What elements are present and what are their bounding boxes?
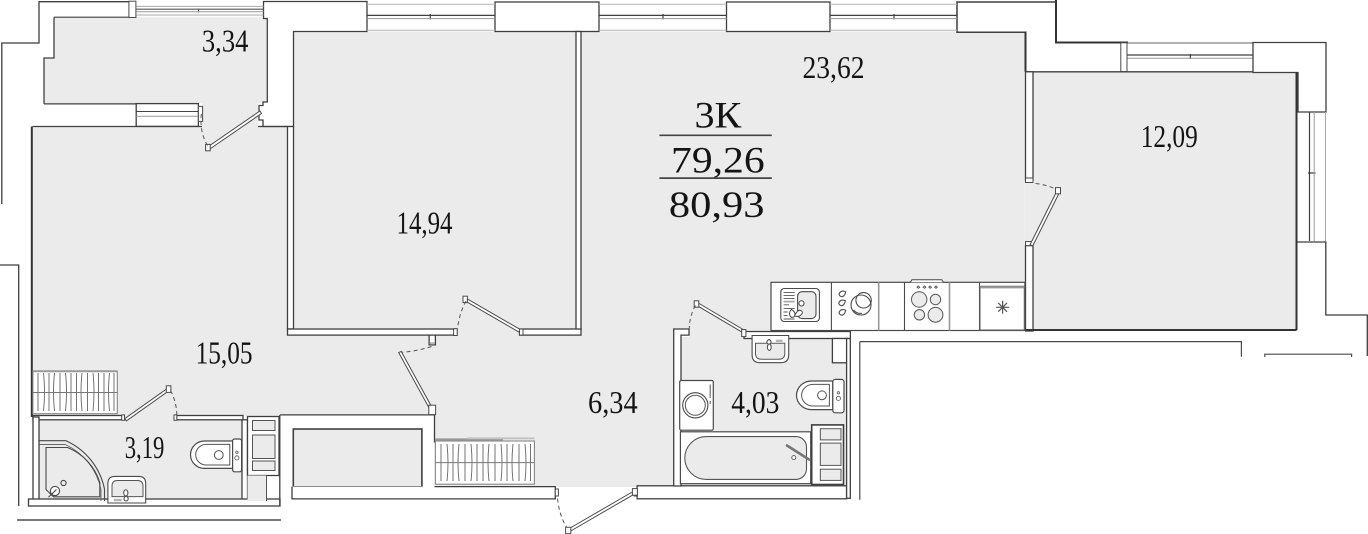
svg-text:23,62: 23,62 [803,49,865,85]
svg-text:80,93: 80,93 [669,185,765,226]
svg-text:79,26: 79,26 [671,140,765,181]
svg-text:3К: 3К [695,96,742,137]
svg-text:15,05: 15,05 [196,335,253,371]
svg-text:12,09: 12,09 [1141,118,1198,154]
svg-text:14,94: 14,94 [397,205,453,241]
svg-text:6,34: 6,34 [588,384,638,420]
svg-text:3,19: 3,19 [125,429,165,465]
svg-text:4,03: 4,03 [731,384,779,420]
svg-text:3,34: 3,34 [202,23,249,59]
